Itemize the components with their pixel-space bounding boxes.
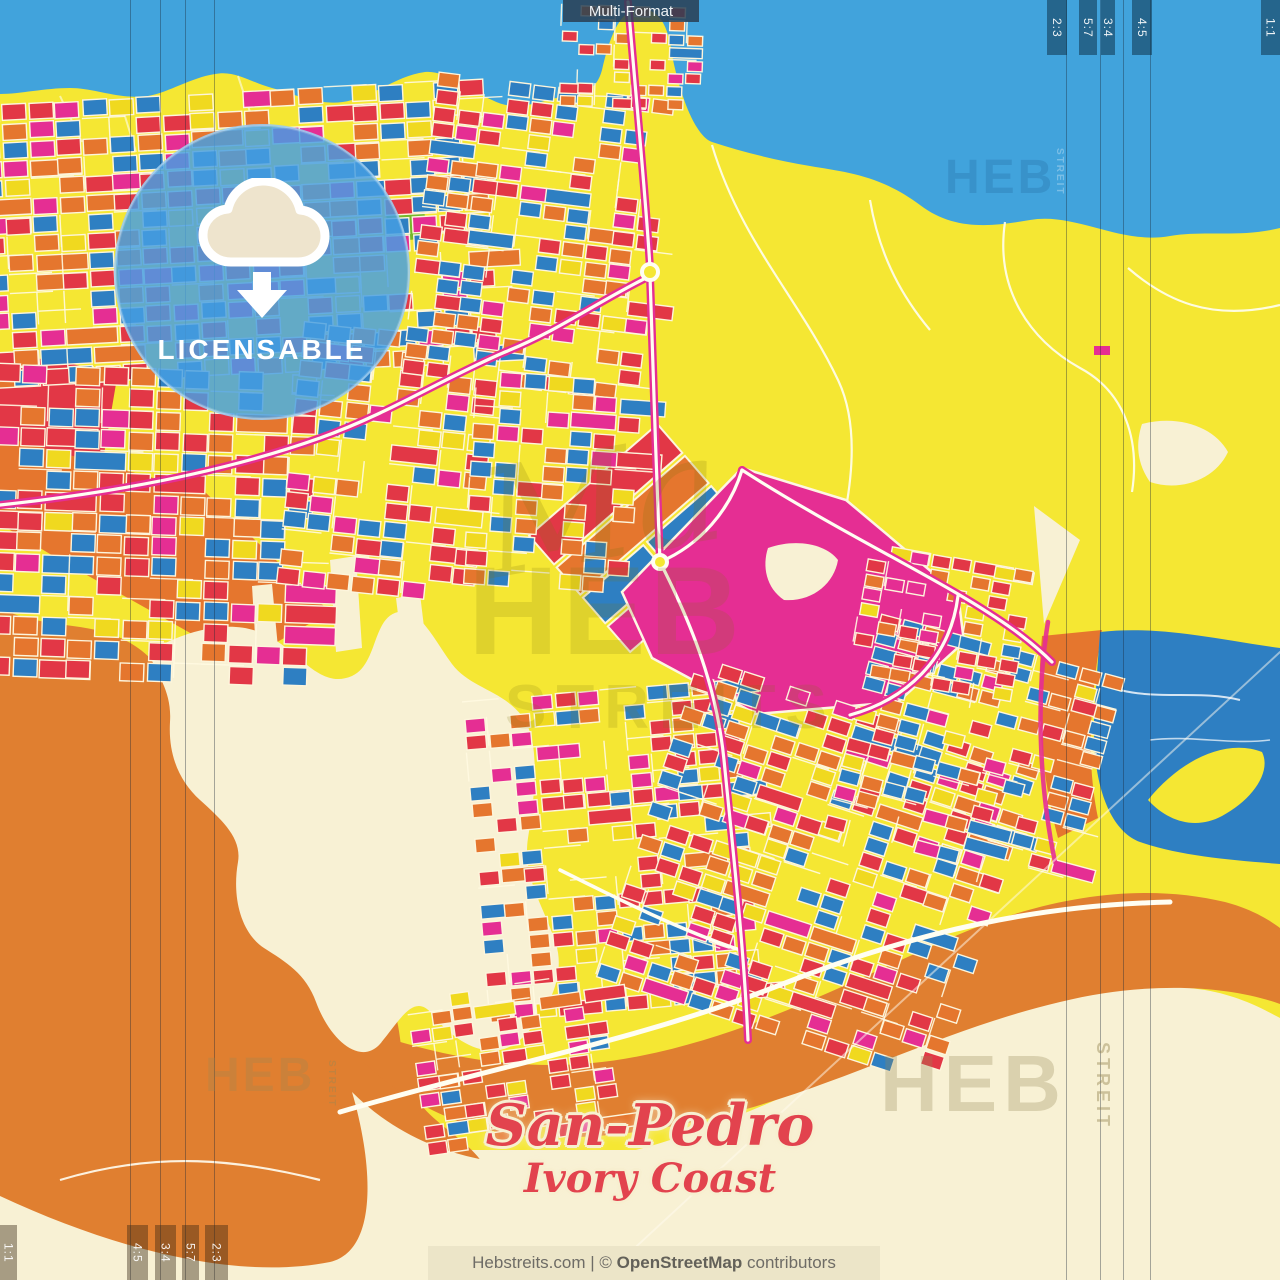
map-title: San-Pedro Ivory Coast	[390, 1096, 910, 1202]
ratio-mark-2-3: 2:3	[1047, 0, 1067, 55]
map-mark	[1094, 346, 1110, 355]
city-name: San-Pedro	[390, 1096, 910, 1156]
roundabout	[653, 555, 667, 569]
ratio-mark-1-1: 1:1	[0, 1225, 17, 1280]
ratio-mark-2-3: 2:3	[205, 1225, 228, 1280]
osm-name: OpenStreetMap	[617, 1253, 743, 1273]
crop-line	[130, 0, 131, 1280]
attribution-suffix: contributors	[742, 1253, 836, 1273]
ratio-mark-5-7: 5:7	[1079, 0, 1097, 55]
ratio-mark-4-5: 4:5	[1132, 0, 1152, 55]
ratio-mark-4-5: 4:5	[127, 1225, 148, 1280]
poster-preview: Ma HEB STREITS HEB STREIT HEB STREIT HEB…	[0, 0, 1280, 1280]
ratio-mark-1-1: 1:1	[1261, 0, 1280, 55]
ratio-mark-3-4: 3:4	[155, 1225, 176, 1280]
roundabout	[642, 264, 658, 280]
crop-line	[1150, 0, 1151, 1280]
ratio-mark-3-4: 3:4	[1101, 0, 1115, 55]
crop-line	[1123, 0, 1124, 1280]
crop-line	[1100, 0, 1101, 1280]
cloud-download-icon	[187, 178, 337, 328]
attribution-bar: Hebstreits.com | © OpenStreetMap contrib…	[428, 1246, 880, 1280]
attribution-prefix: Hebstreits.com | ©	[472, 1253, 616, 1273]
badge-label: LICENSABLE	[158, 334, 367, 366]
format-label: Multi-Format	[563, 0, 699, 22]
ratio-mark-5-7: 5:7	[182, 1225, 199, 1280]
licensable-badge: LICENSABLE	[114, 124, 410, 420]
country-name: Ivory Coast	[390, 1156, 910, 1202]
crop-line	[1066, 0, 1067, 1280]
